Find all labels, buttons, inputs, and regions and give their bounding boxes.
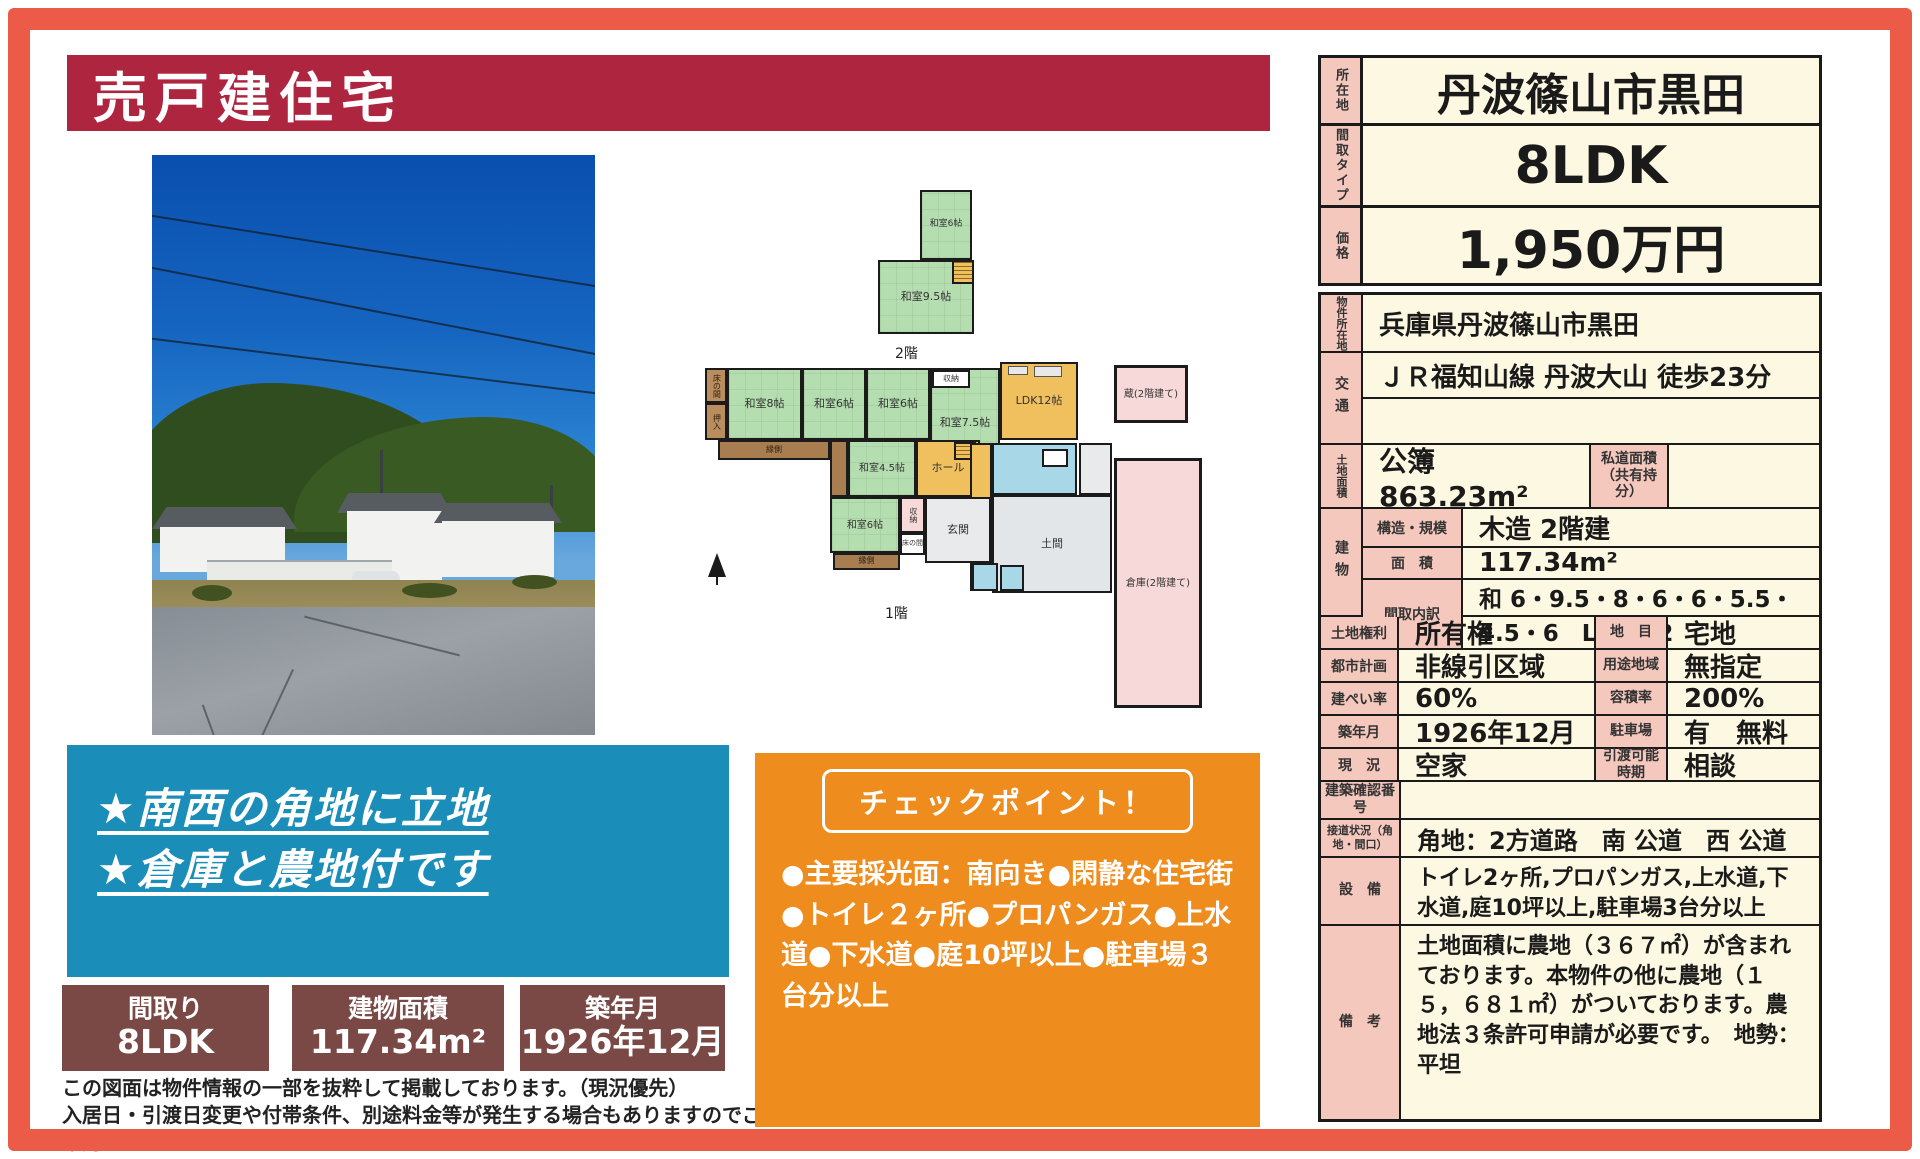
washroom	[1000, 565, 1024, 591]
flyer-page: 売戸建住宅 和室6帖 和室9.5帖 2階 床の	[0, 0, 1920, 1159]
row-land-area: 土地面積 公簿 863.23m² 私道面積（共有持分）	[1321, 443, 1819, 507]
label-land-rights: 土地権利	[1321, 617, 1399, 648]
room-label: 土間	[1041, 538, 1063, 550]
row-building-confirmation: 建築確認番号	[1321, 780, 1819, 818]
summary-label-location: 所在地	[1321, 58, 1363, 123]
house-roof	[434, 503, 562, 523]
checkpoint-body: ●主要採光面：南向き●閑静な住宅街●トイレ２ヶ所●プロパンガス●上水道●下水道●…	[781, 855, 1234, 1017]
bush	[192, 585, 232, 601]
value-remarks: 土地面積に農地（３６７㎡）が含まれております。本物件の他に農地（１５，６８１㎡）…	[1401, 926, 1819, 1119]
summary-value-location: 丹波篠山市黒田	[1363, 58, 1819, 123]
tokonoma-small: 床の間	[900, 533, 925, 555]
room-label: 和室8帖	[745, 398, 785, 410]
title-banner: 売戸建住宅	[67, 55, 1270, 131]
label-property-location: 物件所在地	[1321, 295, 1363, 351]
label-zoning: 用途地域	[1596, 650, 1668, 681]
room-label: 和室6帖	[814, 398, 854, 410]
floor-plan: 和室6帖 和室9.5帖 2階 床の間 押入 和室8帖 和室6帖 和室6帖 和室7…	[690, 175, 1210, 735]
value-property-location: 兵庫県丹波篠山市黒田	[1363, 295, 1819, 351]
summary-row-price: 価格 1,950万円	[1321, 205, 1819, 283]
utility-area	[1079, 443, 1112, 495]
room-label: 床の間	[712, 374, 721, 398]
label-built-date: 築年月	[1321, 716, 1399, 747]
spec-value: 8LDK	[117, 1023, 214, 1061]
room-label: 和室9.5帖	[901, 291, 952, 303]
room-washitsu6-c: 和室6帖	[830, 497, 900, 553]
checkpoint-title: チェックポイント！	[822, 769, 1193, 833]
compass-north-icon	[708, 553, 728, 587]
room-label: 収納	[943, 375, 959, 384]
spec-value: 117.34m²	[310, 1023, 486, 1061]
tokonoma-cell: 床の間	[705, 368, 727, 403]
building-area-row: 面 積 117.34m²	[1363, 546, 1819, 578]
row-remarks: 備 考 土地面積に農地（３６７㎡）が含まれております。本物件の他に農地（１５，６…	[1321, 924, 1819, 1119]
row-land-rights: 土地権利 所有権 地 目 宅地	[1321, 615, 1819, 648]
closet-cell: 押入	[705, 403, 727, 440]
row-transport: 交通 ＪＲ福知山線 丹波大山 徒歩23分	[1321, 351, 1819, 443]
label-building-confirmation: 建築確認番号	[1321, 782, 1401, 818]
room-label: 倉庫(2階建て)	[1126, 578, 1190, 589]
row-current-status: 現 況 空家 引渡可能時期 相談	[1321, 747, 1819, 780]
room-label: 縁側	[859, 557, 875, 566]
property-photo	[152, 155, 595, 735]
row-road-access: 接道状況（角地・間口） 角地：2方道路 南 公道 西 公道	[1321, 818, 1819, 856]
row-city-planning: 都市計画 非線引区域 用途地域 無指定	[1321, 648, 1819, 681]
transport-sub-rows: ＪＲ福知山線 丹波大山 徒歩23分	[1363, 353, 1819, 443]
label-building-area: 面 積	[1363, 548, 1463, 578]
label-floor-ratio: 容積率	[1596, 683, 1668, 714]
value-parking: 有 無料	[1668, 716, 1819, 747]
room-washitsu45: 和室4.5帖	[848, 440, 916, 497]
spec-label: 築年月	[585, 995, 660, 1024]
value-transport-1: ＪＲ福知山線 丹波大山 徒歩23分	[1363, 353, 1819, 397]
summary-label-madori-type: 間取タイプ	[1321, 126, 1363, 205]
value-structure: 木造 2階建	[1463, 509, 1819, 546]
spec-value: 1926年12月	[521, 1023, 725, 1061]
disclaimer: この図面は物件情報の一部を抜粋して掲載しております。（現況優先） 入居日・引渡日…	[62, 1075, 762, 1156]
room-label: 蔵(2階建て)	[1124, 389, 1178, 400]
highlight-box: ★南西の角地に立地 ★倉庫と農地付です	[67, 745, 729, 977]
room-label: 和室4.5帖	[859, 463, 905, 474]
bathtub	[1042, 449, 1068, 467]
engawa-strip-vertical	[830, 440, 848, 497]
spec-box-madori: 間取り 8LDK	[62, 985, 269, 1071]
value-equipment: トイレ2ヶ所,プロパンガス,上水道,下水道,庭10坪以上,駐車場3台分以上	[1401, 858, 1819, 924]
room-2f-washitsu6: 和室6帖	[920, 190, 972, 260]
spec-box-area: 建物面積 117.34m²	[292, 985, 504, 1071]
row-coverage-ratio: 建ぺい率 60% 容積率 200%	[1321, 681, 1819, 714]
bush	[402, 583, 457, 598]
value-road-access: 角地：2方道路 南 公道 西 公道	[1401, 820, 1819, 856]
room-washitsu6-a: 和室6帖	[802, 368, 866, 440]
room-label: 玄関	[947, 524, 969, 536]
summary-row-madori-type: 間取タイプ 8LDK	[1321, 123, 1819, 205]
label-land-area: 土地面積	[1321, 445, 1363, 507]
room-label: 縁側	[766, 446, 782, 455]
compass-arrow	[708, 553, 726, 577]
highlight-line-1: ★南西の角地に立地	[97, 779, 729, 840]
row-property-location: 物件所在地 兵庫県丹波篠山市黒田	[1321, 295, 1819, 351]
room-label: 和室6帖	[930, 220, 963, 230]
disclaimer-line-1: この図面は物件情報の一部を抜粋して掲載しております。（現況優先）	[62, 1075, 762, 1102]
summary-table: 所在地 丹波篠山市黒田 間取タイプ 8LDK 価格 1,950万円	[1318, 55, 1822, 286]
label-road-access: 接道状況（角地・間口）	[1321, 820, 1401, 856]
warehouse-building: 倉庫(2階建て)	[1114, 458, 1202, 708]
value-land-category: 宅地	[1668, 617, 1819, 648]
transport-line-2	[1363, 397, 1819, 443]
page-title: 売戸建住宅	[93, 54, 403, 133]
summary-row-location: 所在地 丹波篠山市黒田	[1321, 58, 1819, 123]
engawa-strip: 縁側	[718, 440, 830, 460]
kura-building: 蔵(2階建て)	[1114, 365, 1188, 423]
value-private-road	[1669, 445, 1819, 507]
value-zoning: 無指定	[1668, 650, 1819, 681]
transport-line-1: ＪＲ福知山線 丹波大山 徒歩23分	[1363, 353, 1819, 397]
spec-box-built: 築年月 1926年12月	[520, 985, 725, 1071]
value-current-status: 空家	[1399, 749, 1596, 780]
room-washitsu6-b: 和室6帖	[866, 368, 930, 440]
room-label: 押入	[712, 414, 721, 430]
label-city-planning: 都市計画	[1321, 650, 1399, 681]
storage-closet: 収納	[900, 497, 925, 533]
spec-label: 建物面積	[348, 995, 448, 1024]
house	[442, 521, 554, 577]
value-floor-ratio: 200%	[1668, 683, 1819, 714]
compass-stem	[716, 577, 718, 585]
row-building-group: 建物 構造・規模 木造 2階建 面 積 117.34m² 間取内訳 和 6・9.…	[1321, 507, 1819, 615]
value-land-rights: 所有権	[1399, 617, 1596, 648]
road	[152, 607, 595, 735]
disclaimer-line-2: 入居日・引渡日変更や付帯条件、別途料金等が発生する場合もありますのでご確認くださ…	[62, 1102, 762, 1156]
summary-label-price: 価格	[1321, 208, 1363, 283]
highlight-line-2: ★倉庫と農地付です	[97, 840, 729, 901]
label-coverage: 建ぺい率	[1321, 683, 1399, 714]
label-handover: 引渡可能時期	[1596, 749, 1668, 780]
label-remarks: 備 考	[1321, 926, 1401, 1119]
staircase-2f	[952, 260, 974, 284]
floor1-label: 1階	[885, 603, 908, 623]
genkan-entrance: 玄関	[925, 497, 991, 563]
label-private-road: 私道面積（共有持分）	[1589, 445, 1669, 507]
house-roof	[152, 507, 297, 529]
house-roof	[337, 493, 452, 513]
building-sub-rows: 構造・規模 木造 2階建 面 積 117.34m² 間取内訳 和 6・9.5・8…	[1363, 509, 1819, 615]
label-building: 建物	[1321, 509, 1363, 615]
label-transport: 交通	[1321, 353, 1363, 443]
spec-label: 間取り	[128, 995, 203, 1024]
value-transport-2	[1363, 399, 1819, 443]
value-city-planning: 非線引区域	[1399, 650, 1596, 681]
room-label: ホール	[932, 462, 965, 474]
storage-cell: 収納	[932, 370, 970, 388]
value-built-date: 1926年12月	[1399, 716, 1596, 747]
toilet	[972, 563, 998, 591]
room-label: 床の間	[902, 540, 923, 548]
floor2-label: 2階	[895, 343, 918, 363]
summary-value-price: 1,950万円	[1363, 208, 1819, 283]
summary-value-madori-type: 8LDK	[1363, 126, 1819, 205]
label-parking: 駐車場	[1596, 716, 1668, 747]
value-handover: 相談	[1668, 749, 1819, 780]
room-washitsu8: 和室8帖	[727, 368, 802, 440]
room-label: 和室7.5帖	[940, 417, 991, 429]
kitchen-counter	[1008, 366, 1028, 375]
label-structure: 構造・規模	[1363, 509, 1463, 546]
bush	[512, 575, 557, 589]
row-equipment: 設 備 トイレ2ヶ所,プロパンガス,上水道,下水道,庭10坪以上,駐車場3台分以…	[1321, 856, 1819, 924]
label-equipment: 設 備	[1321, 858, 1401, 924]
value-building-area: 117.34m²	[1463, 548, 1819, 578]
detail-table: 物件所在地 兵庫県丹波篠山市黒田 交通 ＪＲ福知山線 丹波大山 徒歩23分 土地…	[1318, 292, 1822, 1122]
label-current-status: 現 況	[1321, 749, 1399, 780]
kitchen-sink	[1034, 366, 1062, 377]
room-label: 和室6帖	[847, 520, 883, 531]
value-coverage: 60%	[1399, 683, 1596, 714]
label-land-category: 地 目	[1596, 617, 1668, 648]
room-label: 収納	[908, 507, 917, 523]
value-building-confirmation	[1401, 782, 1819, 818]
value-land-area: 公簿 863.23m²	[1363, 445, 1589, 507]
room-label: 和室6帖	[878, 398, 918, 410]
building-structure-row: 構造・規模 木造 2階建	[1363, 509, 1819, 546]
engawa-strip-bottom: 縁側	[833, 553, 900, 570]
room-label: LDK12帖	[1016, 395, 1063, 407]
checkpoint-box: チェックポイント！ ●主要採光面：南向き●閑静な住宅街●トイレ２ヶ所●プロパンガ…	[755, 753, 1260, 1127]
row-built-date: 築年月 1926年12月 駐車場 有 無料	[1321, 714, 1819, 747]
